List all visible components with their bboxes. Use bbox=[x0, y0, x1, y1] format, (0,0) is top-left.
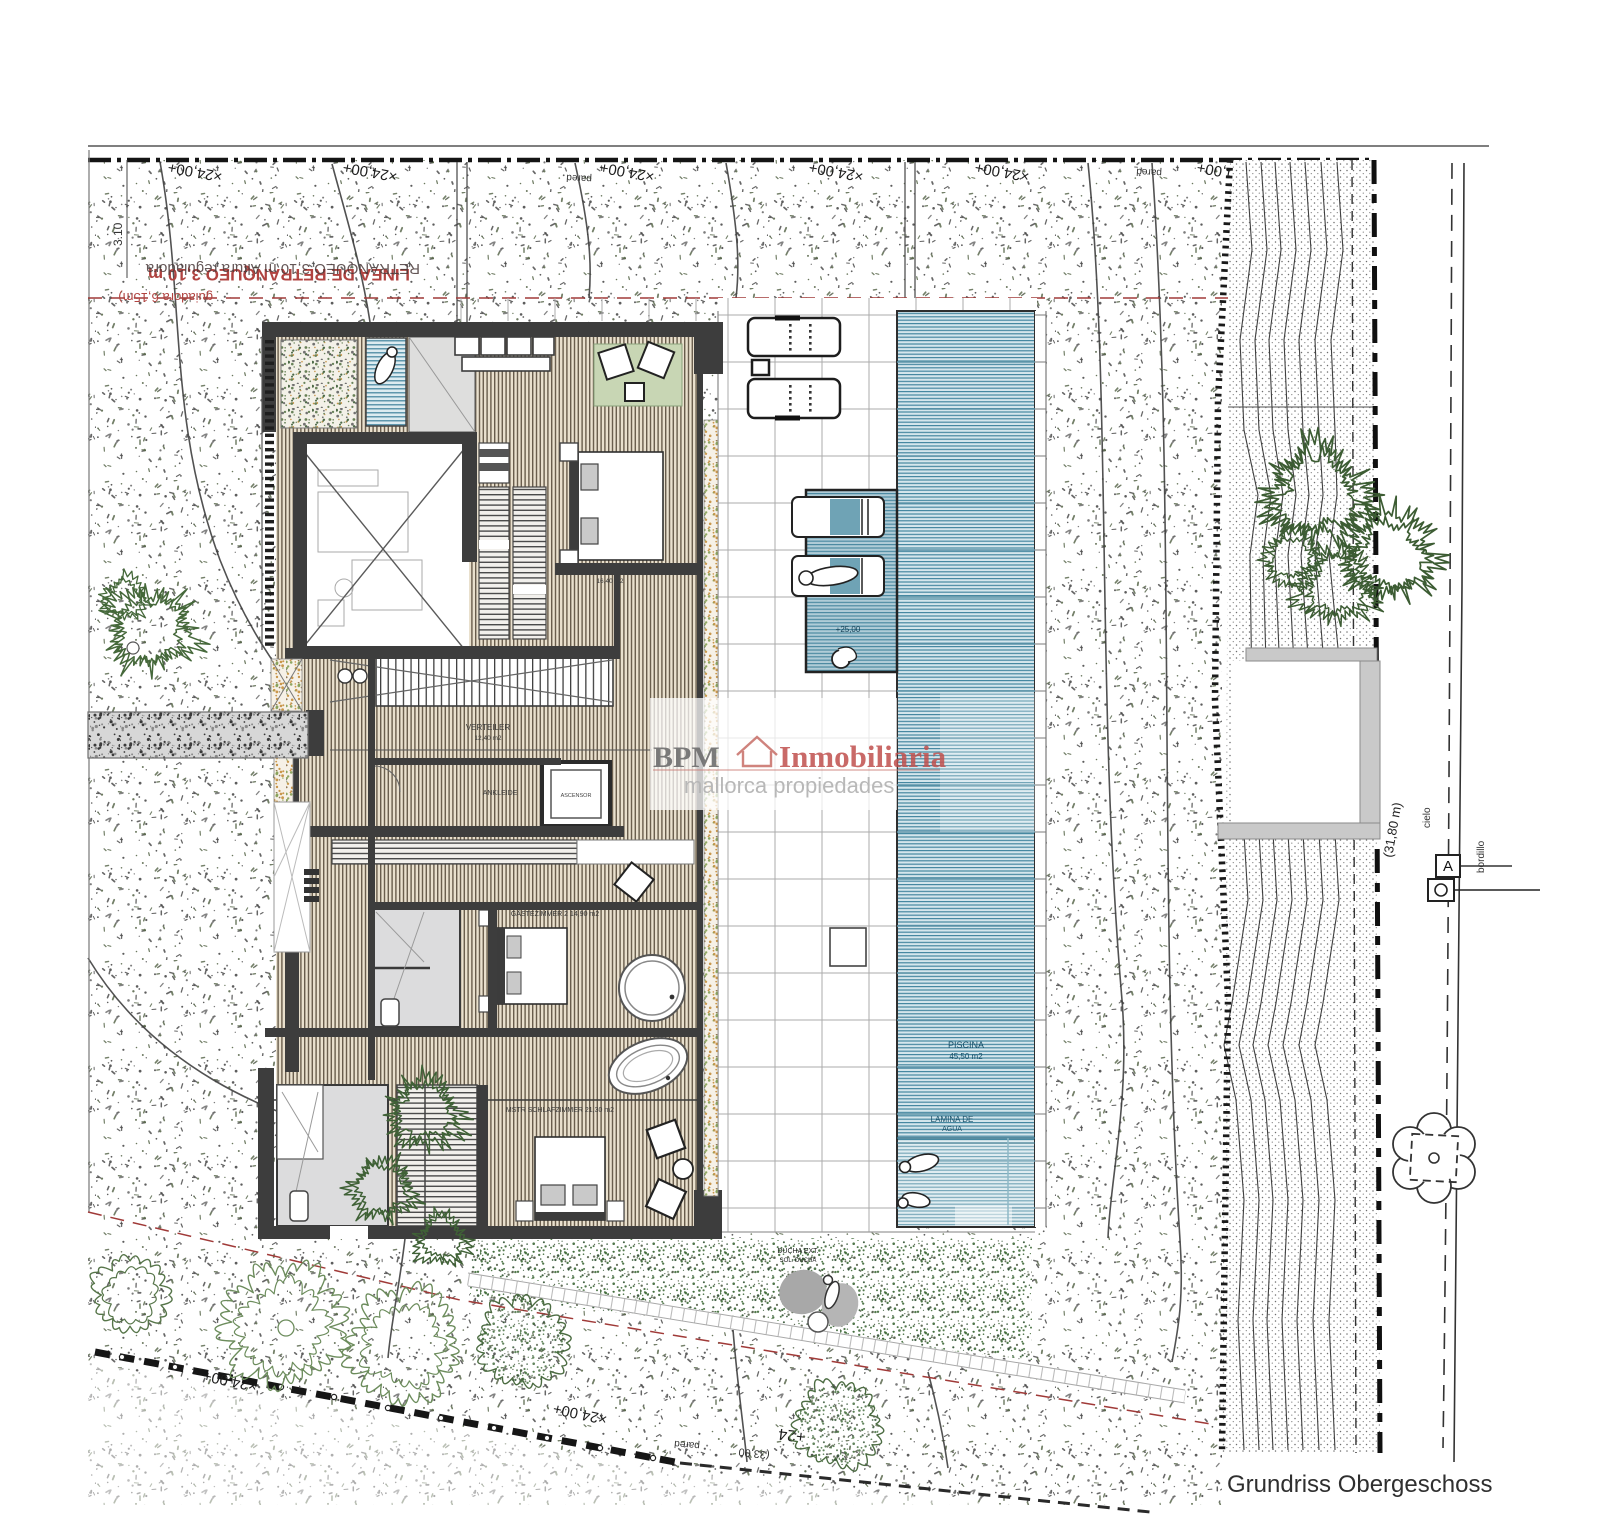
svg-text:AGUA: AGUA bbox=[942, 1126, 962, 1133]
svg-text:ANKLEIDE: ANKLEIDE bbox=[483, 790, 518, 797]
svg-text:bordillo: bordillo bbox=[1476, 840, 1487, 873]
svg-text:pared: pared bbox=[566, 172, 592, 184]
svg-text:Inmobiliaria: Inmobiliaria bbox=[779, 739, 947, 774]
svg-text:GÄSTEZIMMER 2 14,90 m2: GÄSTEZIMMER 2 14,90 m2 bbox=[511, 910, 599, 918]
svg-text:guiadora 6,15m): guiadora 6,15m) bbox=[118, 290, 213, 305]
svg-text:+25,00: +25,00 bbox=[836, 625, 861, 634]
svg-text:DUCHA EXT.: DUCHA EXT. bbox=[777, 1248, 818, 1255]
svg-text:LAMINA DE: LAMINA DE bbox=[931, 1115, 974, 1124]
svg-text:MSTR SCHLAFZIMMER 21,30 m2: MSTR SCHLAFZIMMER 21,30 m2 bbox=[506, 1107, 614, 1114]
svg-text:ASCENSOR: ASCENSOR bbox=[561, 793, 592, 799]
svg-text:BPM: BPM bbox=[653, 741, 720, 774]
svg-text:pared: pared bbox=[674, 1438, 700, 1451]
svg-text:mallorca propiedades: mallorca propiedades bbox=[684, 773, 894, 798]
svg-text:SOL. DUCHA: SOL. DUCHA bbox=[780, 1258, 817, 1264]
svg-text:pared: pared bbox=[1136, 166, 1162, 178]
svg-text:PISCINA: PISCINA bbox=[948, 1040, 984, 1050]
svg-text:RETRANQUEO 3,10 m Altura regu: RETRANQUEO 3,10 m Altura reguladora bbox=[145, 260, 420, 277]
svg-text:12,40 m2: 12,40 m2 bbox=[474, 735, 501, 742]
svg-text:A: A bbox=[1443, 858, 1453, 875]
svg-text:cielo: cielo bbox=[1422, 807, 1433, 828]
svg-text:Grundriss Obergeschoss: Grundriss Obergeschoss bbox=[1227, 1471, 1492, 1498]
svg-text:45,50 m2: 45,50 m2 bbox=[949, 1052, 983, 1061]
svg-text:VERTEILER: VERTEILER bbox=[466, 723, 511, 732]
svg-text:3.10: 3.10 bbox=[111, 222, 125, 246]
